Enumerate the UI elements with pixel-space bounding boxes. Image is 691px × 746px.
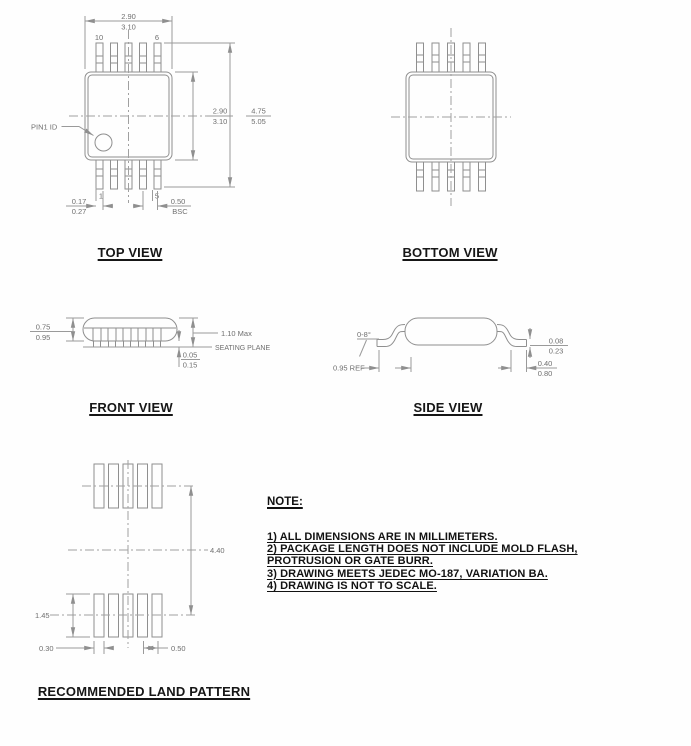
note-line: PROTRUSION OR GATE BURR. <box>267 555 578 567</box>
pin-number-10: 10 <box>95 33 103 42</box>
dim-top-width-lower: 3.10 <box>121 23 136 32</box>
dim-pad-pitch: 0.50 <box>171 644 186 653</box>
dim-body-thickness-upper: 0.75 <box>36 323 51 332</box>
dim-standoff-lower: 0.15 <box>183 361 198 370</box>
dim-body-length-upper: 2.90 <box>213 107 228 116</box>
note-line: 3) DRAWING MEETS JEDEC MO-187, VARIATION… <box>267 568 578 580</box>
pin-number-1: 1 <box>99 192 103 201</box>
notes-block: NOTE: 1) ALL DIMENSIONS ARE IN MILLIMETE… <box>267 496 578 592</box>
dim-lead-width-lower: 0.27 <box>72 207 87 216</box>
note-line: 2) PACKAGE LENGTH DOES NOT INCLUDE MOLD … <box>267 543 578 555</box>
dim-body-thickness-lower: 0.95 <box>36 333 51 342</box>
dim-pad-length: 1.45 <box>35 611 50 620</box>
dim-pad-width: 0.30 <box>39 644 54 653</box>
front-view-drawing: 0.75 0.95 1.10 Max SEATING PLANE 0.05 0.… <box>30 318 270 370</box>
package-outline-drawing-sheet: PIN1 ID 10 6 1 5 2.90 3.10 2.90 3.10 4.7… <box>0 0 691 746</box>
dim-standoff-upper: 0.05 <box>183 351 198 360</box>
bottom-view-title: BOTTOM VIEW <box>402 245 497 260</box>
dim-lead-angle: 0-8° <box>357 330 371 339</box>
front-view-title: FRONT VIEW <box>89 400 173 415</box>
side-view-title: SIDE VIEW <box>414 400 483 415</box>
dim-pitch-lower: BSC <box>172 207 188 216</box>
land-pattern-title: RECOMMENDED LAND PATTERN <box>38 684 250 699</box>
dim-lead-thickness-lower: 0.23 <box>549 347 564 356</box>
dim-top-width-upper: 2.90 <box>121 12 136 21</box>
dim-foot-length-lower: 0.80 <box>538 369 553 378</box>
dim-overall-length-lower: 5.05 <box>251 117 266 126</box>
dim-height-max: 1.10 Max <box>221 329 252 338</box>
note-line: 1) ALL DIMENSIONS ARE IN MILLIMETERS. <box>267 531 578 543</box>
dim-lead-width-upper: 0.17 <box>72 197 87 206</box>
note-line: 4) DRAWING IS NOT TO SCALE. <box>267 580 578 592</box>
front-view-pins <box>93 328 161 347</box>
dim-pitch-upper: 0.50 <box>171 197 186 206</box>
dim-overall-length-upper: 4.75 <box>251 107 266 116</box>
pin1-indicator-circle <box>95 134 112 151</box>
drawing-canvas: PIN1 ID 10 6 1 5 2.90 3.10 2.90 3.10 4.7… <box>0 0 691 746</box>
dim-foot-length-upper: 0.40 <box>538 359 553 368</box>
dim-lead-ref: 0.95 REF <box>333 364 365 373</box>
top-view-title: TOP VIEW <box>98 245 163 260</box>
dim-row-span: 4.40 <box>210 546 225 555</box>
note-title: NOTE: <box>267 496 578 508</box>
top-view-drawing: PIN1 ID 10 6 1 5 2.90 3.10 2.90 3.10 4.7… <box>31 12 271 216</box>
land-pattern-drawing: 4.40 1.45 0.30 0.50 <box>35 460 225 654</box>
pin-number-6: 6 <box>155 33 159 42</box>
side-view-drawing: 0-8° 0.95 REF 0.08 0.23 0.40 0.80 <box>333 318 568 378</box>
bottom-view-drawing <box>391 28 511 206</box>
dim-body-length-lower: 3.10 <box>213 117 228 126</box>
seating-plane-label: SEATING PLANE <box>215 345 270 352</box>
pin1-id-label: PIN1 ID <box>31 123 58 132</box>
dim-lead-thickness-upper: 0.08 <box>549 337 564 346</box>
